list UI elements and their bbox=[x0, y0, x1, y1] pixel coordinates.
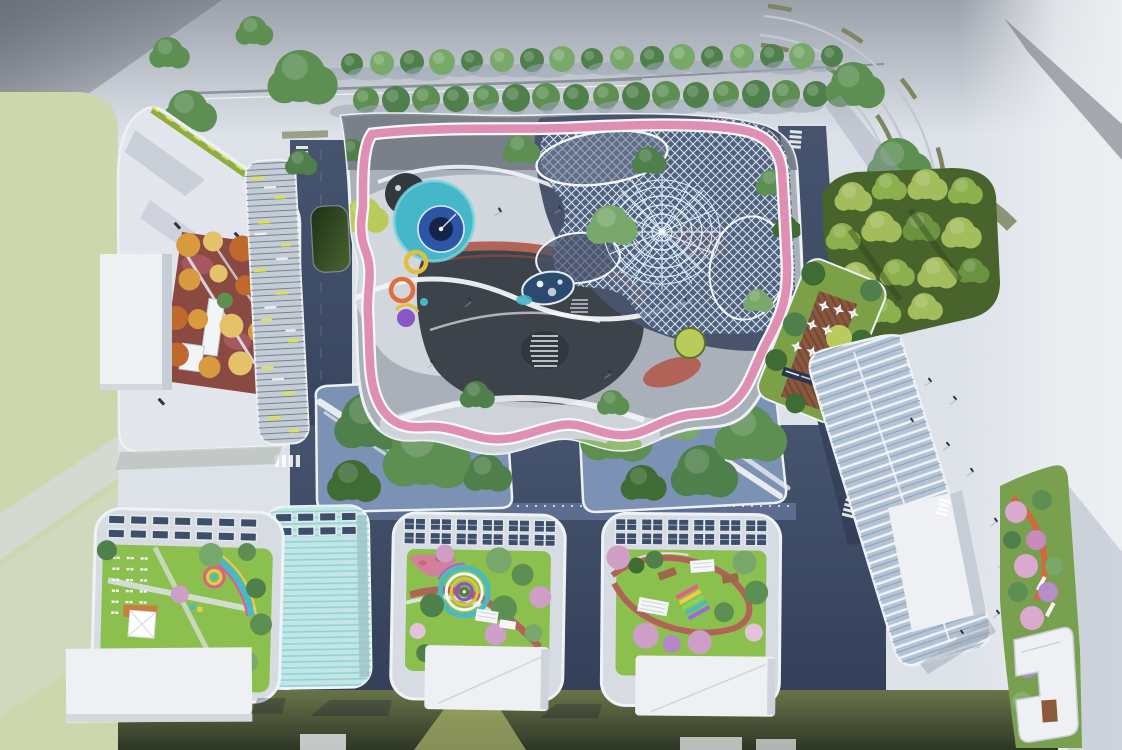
dark-pond bbox=[310, 205, 350, 273]
pergola bbox=[690, 559, 715, 573]
east-plaza bbox=[888, 330, 1010, 660]
block-b-white-volume bbox=[424, 645, 549, 711]
site-plan-rendering bbox=[0, 0, 1122, 750]
lower-building bbox=[756, 739, 796, 750]
lower-building bbox=[300, 734, 346, 750]
play-pad-purple bbox=[397, 309, 415, 327]
play-circle bbox=[204, 567, 225, 588]
east-garden-strip bbox=[1000, 465, 1082, 748]
event-tent bbox=[128, 610, 156, 638]
block-c-white-volume bbox=[635, 656, 776, 717]
masterplan-svg bbox=[0, 0, 1122, 750]
lower-building bbox=[680, 737, 742, 750]
block-c-rooftop-garden bbox=[601, 513, 781, 717]
block-b-rooftop-garden bbox=[390, 513, 565, 712]
white-annex-volume bbox=[100, 254, 172, 390]
central-plaza bbox=[336, 110, 806, 461]
block-a-white-volume bbox=[66, 647, 253, 723]
